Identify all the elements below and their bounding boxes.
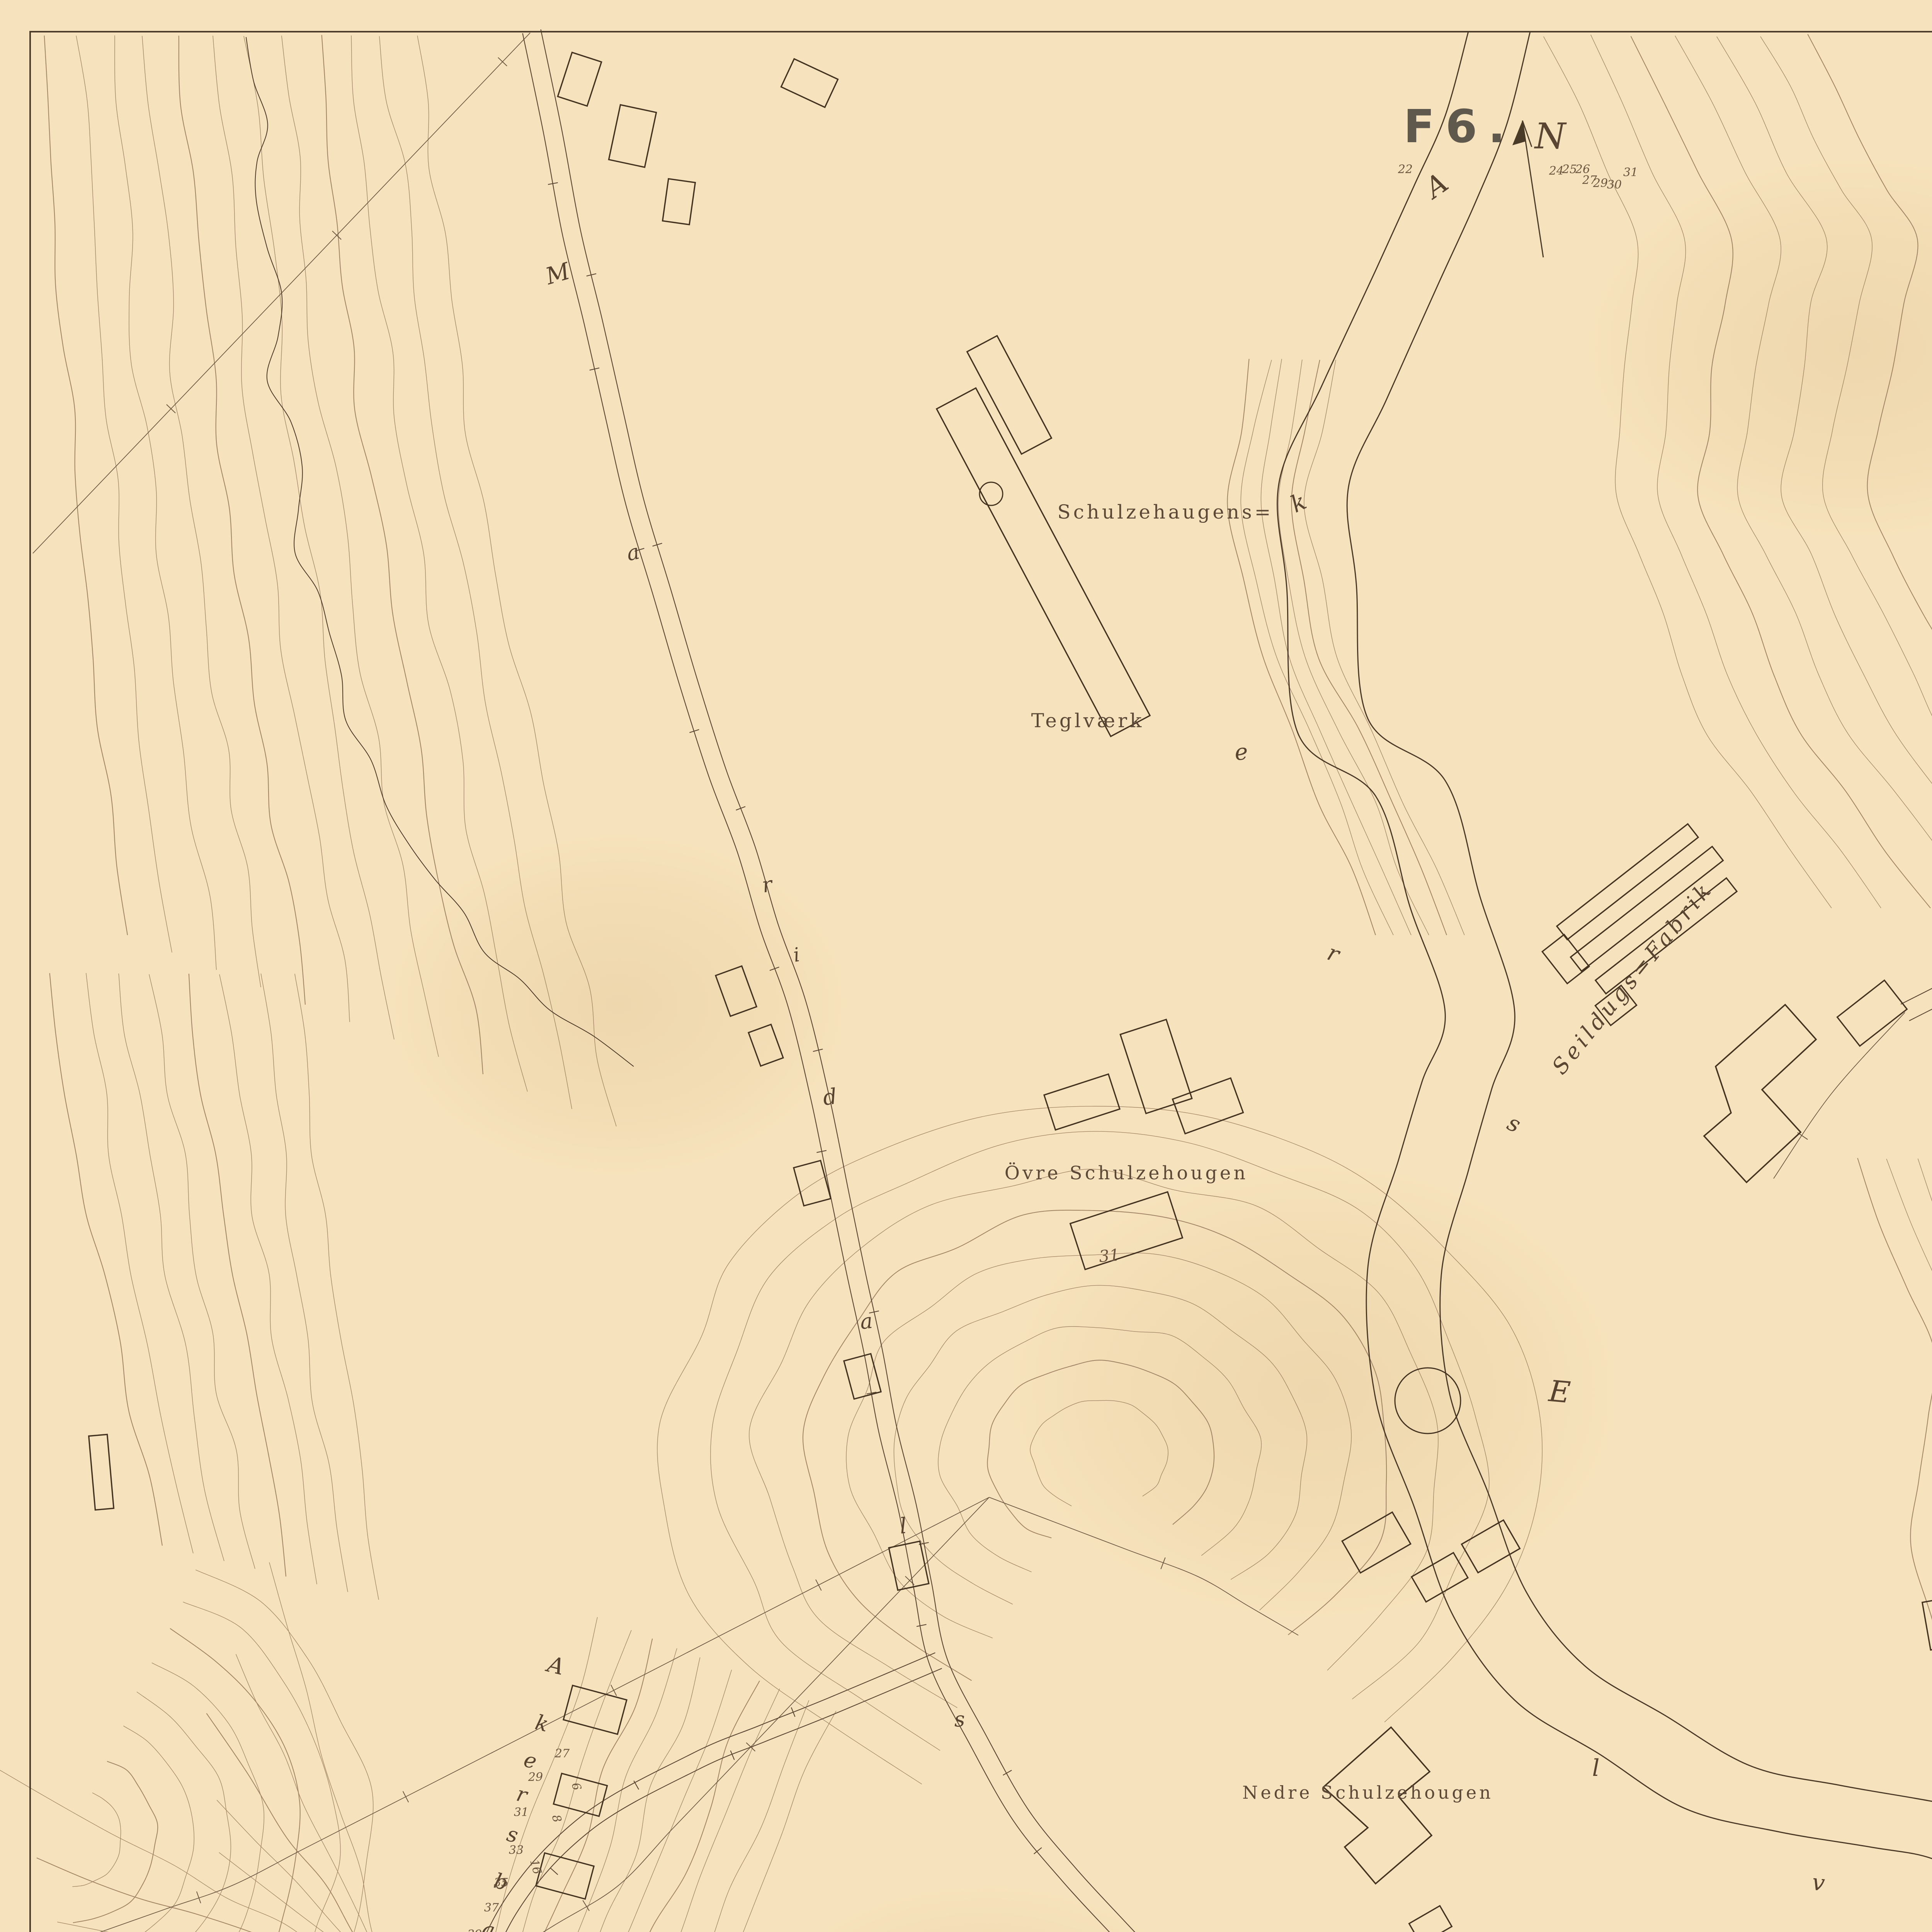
- maridalsveien-letter: a: [859, 1309, 874, 1334]
- map-number: 22: [1398, 163, 1413, 176]
- maridalsveien-letter: s: [954, 1707, 965, 1732]
- map-number: 29: [528, 1770, 543, 1784]
- map-canvas: F6.NThorvald MeyersGadeSchulzehaugens=Te…: [0, 0, 1932, 1932]
- building-31: 31: [1098, 1245, 1121, 1266]
- map-number: 29: [1593, 177, 1608, 190]
- map-number: 27: [554, 1747, 570, 1760]
- sheet-title: F6.: [1403, 100, 1516, 153]
- nedre-schulzehougen: Nedre Schulzehougen: [1242, 1782, 1493, 1803]
- ovre-schulzehougen: Övre Schulzehougen: [1005, 1162, 1248, 1184]
- akerselva-letter: E: [1547, 1374, 1572, 1410]
- north-letter: N: [1534, 116, 1567, 157]
- map-number: 30: [1607, 178, 1622, 192]
- map-sheet: F6.NThorvald MeyersGadeSchulzehaugens=Te…: [0, 0, 1932, 1932]
- map-number: 31: [514, 1806, 529, 1819]
- teglvaerk: Teglværk: [1031, 709, 1145, 732]
- map-number: 39: [467, 1928, 482, 1932]
- map-number: 31: [1623, 166, 1638, 179]
- akerselva-letter: l: [1592, 1755, 1599, 1782]
- akerselva-letter: e: [1233, 738, 1249, 766]
- map-number: 33: [509, 1844, 524, 1857]
- map-number: 35: [494, 1876, 509, 1889]
- map-number: 24: [1549, 164, 1564, 178]
- map-number: 25: [1562, 163, 1577, 176]
- schulzehaugens: Schulzehaugens=: [1057, 501, 1273, 523]
- map-number: 37: [484, 1901, 499, 1915]
